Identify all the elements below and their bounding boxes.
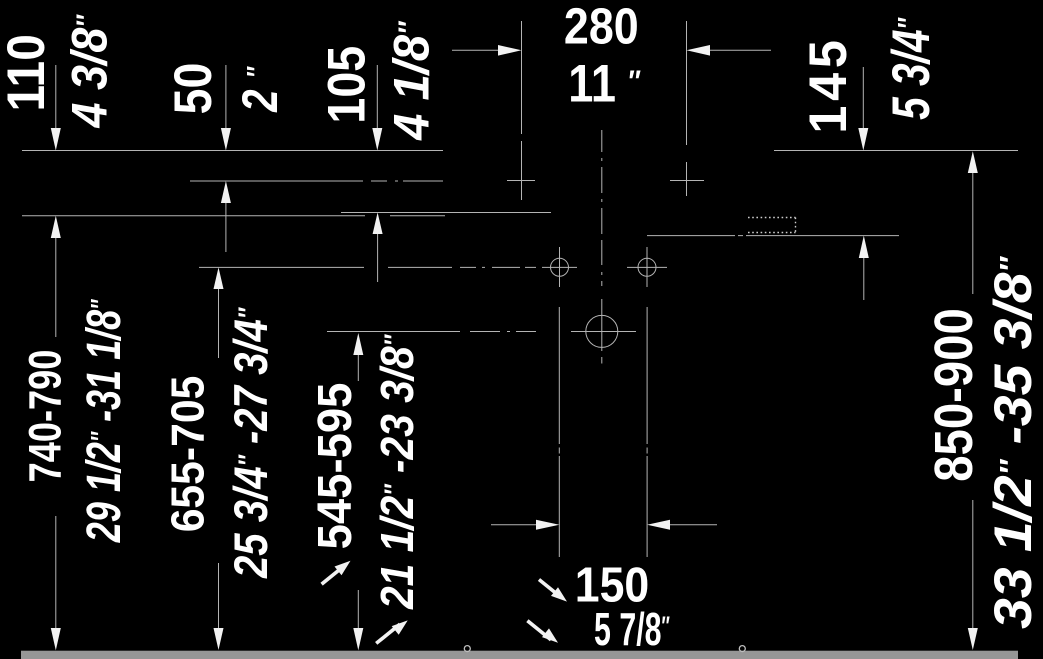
svg-text:280: 280: [564, 0, 639, 55]
svg-text:5 7/8″: 5 7/8″: [594, 605, 670, 656]
svg-text:655-705: 655-705: [163, 376, 214, 533]
svg-text:4 1/8″: 4 1/8″: [384, 20, 440, 140]
svg-text:110: 110: [0, 34, 56, 111]
svg-text:740-790: 740-790: [20, 350, 71, 483]
svg-text:545-595: 545-595: [308, 383, 361, 550]
svg-text:850-900: 850-900: [923, 308, 984, 482]
svg-text:29 1/2″ -31 1/8″: 29 1/2″ -31 1/8″: [77, 299, 130, 543]
svg-text:4 3/8″: 4 3/8″: [62, 13, 118, 128]
svg-text:25 3/4″ -27 3/4″: 25 3/4″ -27 3/4″: [225, 306, 278, 579]
svg-text:21 1/2″ -23 3/8″: 21 1/2″ -23 3/8″: [373, 334, 424, 610]
svg-text:50: 50: [163, 63, 223, 115]
svg-text:145: 145: [798, 35, 857, 133]
svg-text:105: 105: [317, 46, 376, 124]
svg-text:33 1/2″ -35 3/8″: 33 1/2″ -35 3/8″: [984, 255, 1043, 629]
svg-text:5 3/4″: 5 3/4″: [882, 17, 941, 120]
